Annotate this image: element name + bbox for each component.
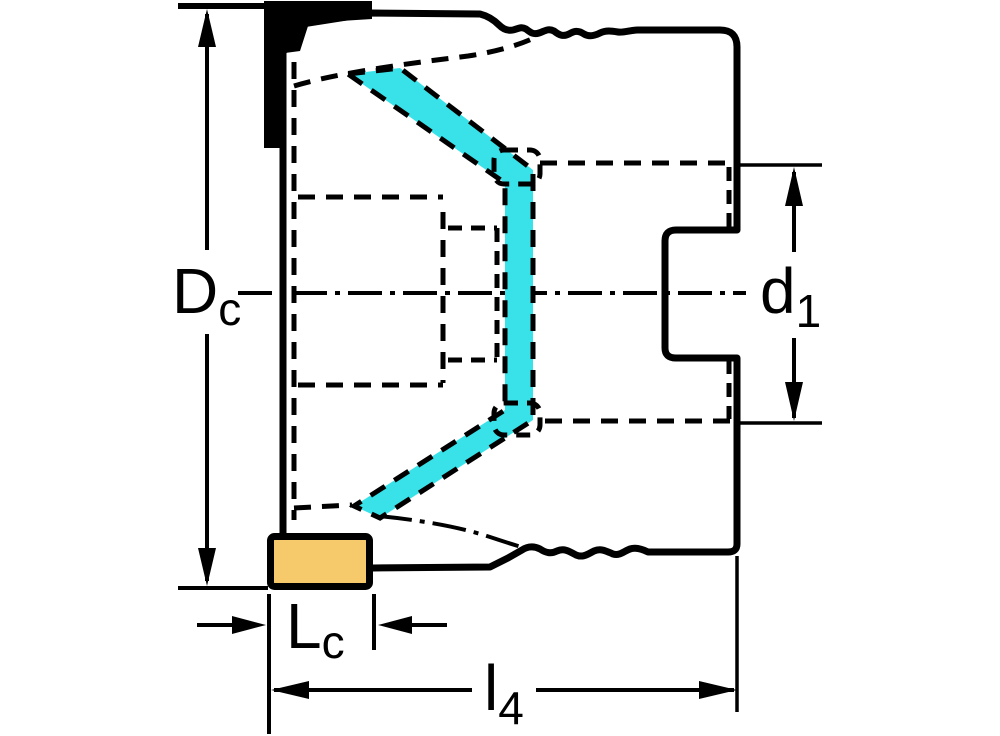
drawing-canvas: Dc d1 Lc l4	[0, 0, 1000, 736]
cutter-dimension-diagram: Dc d1 Lc l4	[0, 0, 1000, 736]
background	[0, 0, 1000, 736]
bottom-insert	[271, 537, 370, 587]
